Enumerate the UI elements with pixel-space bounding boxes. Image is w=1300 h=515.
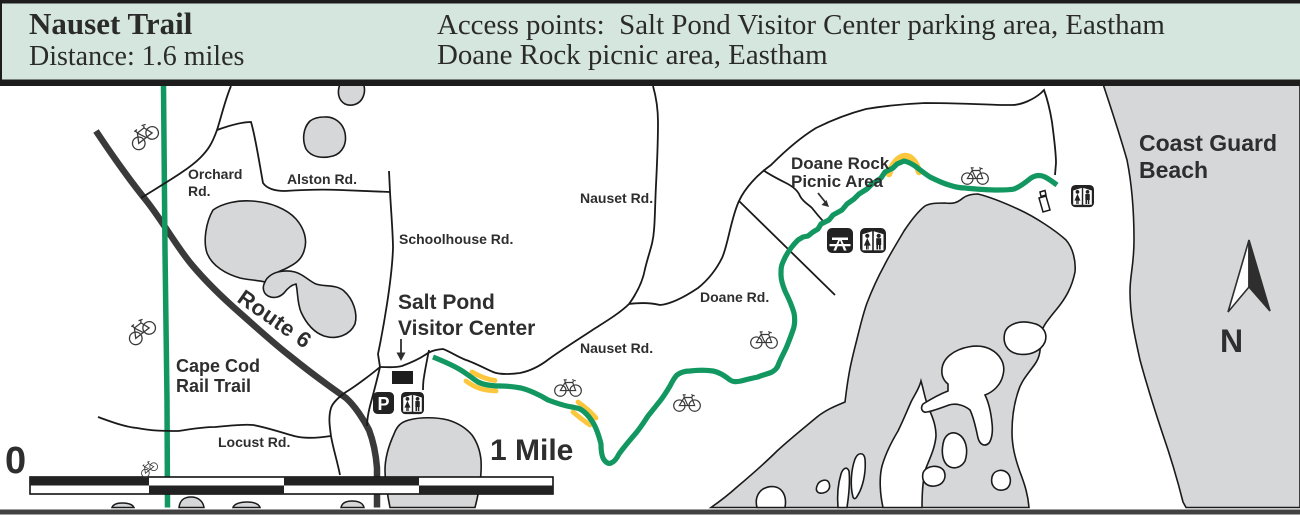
svg-text:Nauset Trail: Nauset Trail — [29, 6, 193, 41]
svg-text:Doane Rd.: Doane Rd. — [700, 289, 769, 305]
svg-text:Doane Rock picnic area, Eastha: Doane Rock picnic area, Eastham — [437, 39, 828, 71]
svg-text:Picnic Area: Picnic Area — [791, 172, 884, 191]
svg-text:Alston Rd.: Alston Rd. — [287, 171, 357, 187]
svg-text:Beach: Beach — [1139, 157, 1208, 183]
svg-text:Rd.: Rd. — [188, 183, 211, 199]
svg-text:Nauset Rd.: Nauset Rd. — [580, 340, 653, 356]
svg-text:P: P — [377, 394, 389, 414]
svg-text:Nauset Rd.: Nauset Rd. — [580, 190, 653, 206]
svg-text:Doane Rock: Doane Rock — [791, 154, 890, 173]
svg-text:0: 0 — [5, 440, 26, 482]
svg-text:Visitor Center: Visitor Center — [398, 317, 535, 340]
svg-text:1 Mile: 1 Mile — [490, 434, 573, 467]
svg-text:Orchard: Orchard — [188, 166, 242, 182]
svg-text:Access points: Salt Pond Visi: Access points: Salt Pond Visitor Center … — [437, 9, 1165, 41]
svg-text:Distance: 1.6 miles: Distance: 1.6 miles — [29, 41, 244, 72]
svg-text:Locust Rd.: Locust Rd. — [218, 434, 290, 450]
svg-text:Coast Guard: Coast Guard — [1139, 130, 1277, 156]
svg-text:Salt Pond: Salt Pond — [398, 291, 495, 314]
svg-text:Cape Cod: Cape Cod — [176, 356, 260, 376]
svg-text:Schoolhouse Rd.: Schoolhouse Rd. — [399, 231, 513, 247]
svg-text:N: N — [1220, 323, 1243, 359]
svg-text:Rail Trail: Rail Trail — [176, 376, 251, 396]
